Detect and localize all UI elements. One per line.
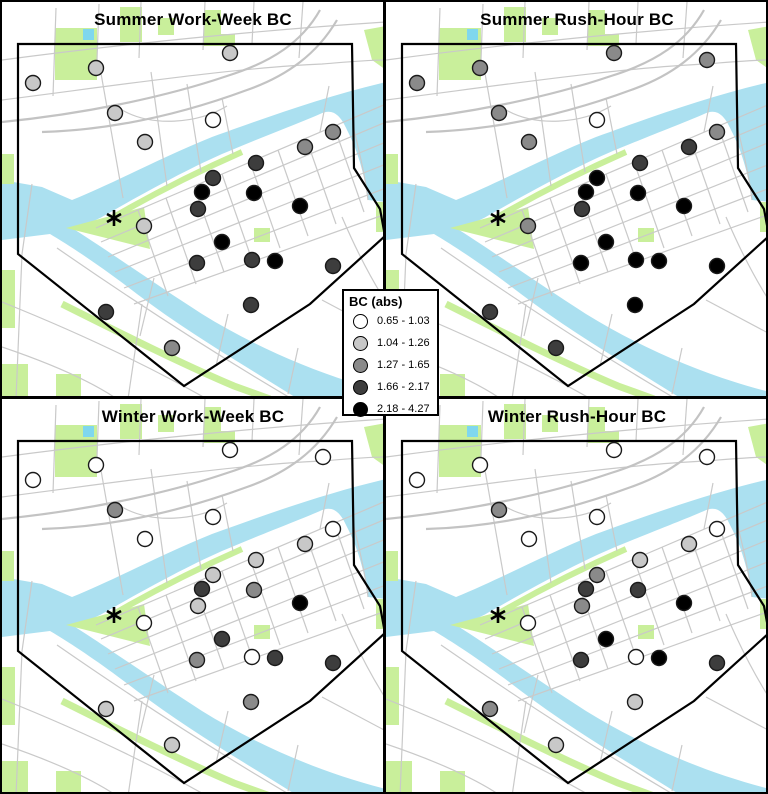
site-dot	[710, 522, 725, 537]
site-dot	[682, 537, 697, 552]
site-dot	[190, 256, 205, 271]
site-dot	[195, 582, 210, 597]
site-dot	[249, 553, 264, 568]
site-dot	[522, 135, 537, 150]
site-dot	[215, 632, 230, 647]
site-dot	[579, 185, 594, 200]
site-dot	[599, 632, 614, 647]
site-dot	[710, 656, 725, 671]
site-dot	[682, 140, 697, 155]
panel-title-summer-workweek: Summer Work-Week BC	[2, 10, 384, 30]
basemap-summer-workweek	[2, 2, 384, 397]
legend-class-circle	[353, 380, 368, 395]
legend-row: 1.27 - 1.65	[344, 354, 437, 376]
site-dot	[326, 656, 341, 671]
legend-class-circle	[353, 314, 368, 329]
panel-summer-workweek: Summer Work-Week BC	[2, 2, 384, 397]
site-dot	[549, 738, 564, 753]
site-dot	[268, 254, 283, 269]
site-dot	[165, 738, 180, 753]
site-dot	[607, 443, 622, 458]
site-dot	[108, 503, 123, 518]
site-dot	[677, 199, 692, 214]
site-dot	[326, 125, 341, 140]
site-dot	[223, 46, 238, 61]
site-dot	[628, 298, 643, 313]
site-dot	[249, 156, 264, 171]
site-dot	[247, 583, 262, 598]
site-dot	[137, 616, 152, 631]
site-dot	[700, 450, 715, 465]
site-dot	[206, 510, 221, 525]
site-dot	[191, 202, 206, 217]
site-dot	[522, 532, 537, 547]
site-dot	[473, 458, 488, 473]
legend-class-label: 1.66 - 2.17	[377, 381, 430, 393]
site-dot	[89, 61, 104, 76]
site-dot	[298, 140, 313, 155]
site-dot	[165, 341, 180, 356]
site-dot	[326, 259, 341, 274]
site-dot	[521, 219, 536, 234]
site-dot	[629, 650, 644, 665]
site-dot	[99, 305, 114, 320]
site-dot	[652, 651, 667, 666]
site-dot	[26, 76, 41, 91]
panel-title-winter-workweek: Winter Work-Week BC	[2, 407, 384, 427]
legend-class-label: 0.65 - 1.03	[377, 315, 430, 327]
site-dot	[631, 583, 646, 598]
site-dot	[244, 695, 259, 710]
site-dot	[245, 253, 260, 268]
site-dot	[99, 702, 114, 717]
site-dot	[293, 596, 308, 611]
legend-title: BC (abs)	[349, 294, 437, 309]
site-dot	[244, 298, 259, 313]
site-dot	[710, 259, 725, 274]
basemap-winter-workweek	[2, 399, 384, 794]
site-dot	[195, 185, 210, 200]
site-dot	[410, 473, 425, 488]
site-dot	[629, 253, 644, 268]
site-dot	[492, 106, 507, 121]
site-dot	[710, 125, 725, 140]
legend-row: 1.66 - 2.17	[344, 376, 437, 398]
panel-winter-rushhour: Winter Rush-Hour BC	[386, 399, 768, 794]
site-dot	[268, 651, 283, 666]
site-dot	[137, 219, 152, 234]
site-dot	[677, 596, 692, 611]
legend-class-circle	[353, 336, 368, 351]
site-dot	[574, 256, 589, 271]
site-dot	[190, 653, 205, 668]
site-dot	[574, 653, 589, 668]
legend-box: BC (abs) 0.65 - 1.03 1.04 - 1.26 1.27 - …	[342, 289, 439, 416]
site-dot	[473, 61, 488, 76]
site-dot	[492, 503, 507, 518]
legend-class-label: 1.04 - 1.26	[377, 337, 430, 349]
basemap-winter-rushhour	[386, 399, 768, 794]
site-dot	[26, 473, 41, 488]
site-dot	[483, 305, 498, 320]
site-dot	[138, 532, 153, 547]
legend-class-circle	[353, 358, 368, 373]
site-dot	[633, 156, 648, 171]
site-dot	[108, 106, 123, 121]
legend-row: 1.04 - 1.26	[344, 332, 437, 354]
site-dot	[206, 113, 221, 128]
site-dot	[410, 76, 425, 91]
site-dot	[223, 443, 238, 458]
site-dot	[298, 537, 313, 552]
legend-row: 0.65 - 1.03	[344, 310, 437, 332]
site-dot	[245, 650, 260, 665]
site-dot	[631, 186, 646, 201]
site-dot	[652, 254, 667, 269]
site-dot	[89, 458, 104, 473]
site-dot	[575, 202, 590, 217]
legend-class-circle	[353, 402, 368, 417]
site-dot	[549, 341, 564, 356]
panel-title-winter-rushhour: Winter Rush-Hour BC	[386, 407, 768, 427]
site-dot	[483, 702, 498, 717]
site-dot	[575, 599, 590, 614]
site-dot	[316, 450, 331, 465]
site-dot	[206, 171, 221, 186]
site-dot	[521, 616, 536, 631]
site-dot	[607, 46, 622, 61]
site-dot	[191, 599, 206, 614]
site-dot	[215, 235, 230, 250]
panel-title-summer-rushhour: Summer Rush-Hour BC	[386, 10, 768, 30]
site-dot	[628, 695, 643, 710]
site-dot	[293, 199, 308, 214]
legend-row: 2.18 - 4.27	[344, 398, 437, 420]
site-dot	[633, 553, 648, 568]
site-dot	[326, 522, 341, 537]
site-dot	[590, 510, 605, 525]
site-dot	[599, 235, 614, 250]
site-dot	[579, 582, 594, 597]
site-dot	[590, 113, 605, 128]
site-dot	[206, 568, 221, 583]
site-dot	[590, 568, 605, 583]
site-dot	[247, 186, 262, 201]
site-dot	[138, 135, 153, 150]
site-dot	[700, 53, 715, 68]
basemap-summer-rushhour	[386, 2, 768, 397]
panel-summer-rushhour: Summer Rush-Hour BC	[386, 2, 768, 397]
bc-map-figure: Summer Work-Week BC Summer Rush-Hour BC …	[0, 0, 768, 794]
site-dot	[590, 171, 605, 186]
legend-class-label: 1.27 - 1.65	[377, 359, 430, 371]
panel-winter-workweek: Winter Work-Week BC	[2, 399, 384, 794]
legend-class-label: 2.18 - 4.27	[377, 403, 430, 415]
